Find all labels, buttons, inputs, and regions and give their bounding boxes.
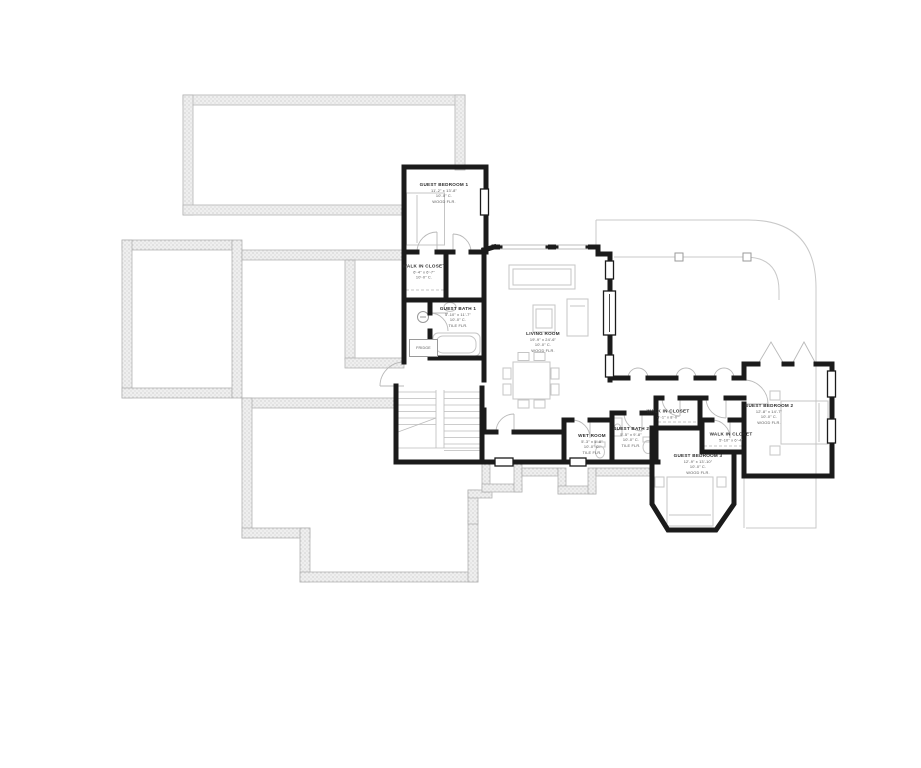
foundation-band xyxy=(468,520,478,582)
room-label-guest-bedroom-2: GUEST BEDROOM 2 12'-8" x 14'-7" 10'-0" C… xyxy=(745,403,794,425)
window-well xyxy=(522,468,558,476)
window-well xyxy=(596,468,652,476)
room-label-guest-bath-1: GUEST BATH 1 5'-10" x 11'-7" 10'-0" C. T… xyxy=(440,306,476,328)
staircase xyxy=(398,390,480,451)
wall-living-north xyxy=(484,247,598,250)
fridge-label: FRIDGE xyxy=(416,346,431,350)
room-label-guest-bedroom-3: GUEST BEDROOM 3 12'-9" x 13'-10" 10'-0" … xyxy=(674,453,723,475)
window-symbol xyxy=(828,419,836,443)
bathtub-inner xyxy=(436,336,476,353)
window-symbol xyxy=(570,458,586,466)
room-label-walk-in-closet-2: WALK IN CLOSET 4'-1" x 8'-0" xyxy=(647,408,690,419)
window-well xyxy=(588,468,596,494)
window-symbol xyxy=(495,458,513,466)
room-floor: WOOD FLR. xyxy=(745,420,794,425)
window-symbol xyxy=(828,371,836,397)
floor-plan-canvas: GUEST BEDROOM 1 11'-2" x 13'-8" 10'-0" C… xyxy=(0,0,921,768)
room-label-wet-room: WET ROOM 5'-3" x 5'-8" 10'-0" C. TILE FL… xyxy=(578,433,606,455)
foundation-band xyxy=(122,240,232,250)
foundation-band xyxy=(345,260,355,360)
foundation-band xyxy=(183,95,465,105)
foundation-band xyxy=(122,388,232,398)
french-door-arc xyxy=(714,368,734,378)
casement-window-symbol xyxy=(792,342,816,364)
room-dims: 4'-1" x 8'-0" xyxy=(647,414,690,419)
armchair-cushion xyxy=(536,309,552,328)
sofa-cushion xyxy=(513,269,571,285)
room-floor: TILE FLR. xyxy=(613,443,649,448)
stair-break-line xyxy=(398,418,436,432)
fridge-box: FRIDGE xyxy=(409,339,438,357)
dining-chair xyxy=(518,400,529,408)
floor-plan-drawing xyxy=(0,0,921,768)
dining-chair xyxy=(534,353,545,361)
window-symbol xyxy=(606,261,614,279)
room-floor: TILE FLR. xyxy=(440,323,476,328)
foundation-band xyxy=(345,358,404,368)
stair-treads-right xyxy=(444,392,480,451)
dining-chair xyxy=(534,400,545,408)
foundation-band xyxy=(183,205,405,215)
nightstand xyxy=(717,477,726,487)
foundation-band xyxy=(122,240,132,398)
dining-table xyxy=(513,362,550,399)
chaise xyxy=(567,299,588,336)
foundation-band xyxy=(242,250,404,260)
room-dims: 5'-10" x 6'-4" xyxy=(710,437,753,442)
door-swing-arc xyxy=(453,234,471,252)
dining-chair xyxy=(503,368,511,379)
patio-beam-line xyxy=(614,257,779,300)
bed xyxy=(667,477,713,526)
window-symbol xyxy=(481,189,489,215)
stair-treads-left xyxy=(398,392,436,425)
foundation-band xyxy=(300,572,478,582)
nightstand xyxy=(770,446,780,455)
wall-corridor-north xyxy=(610,364,744,378)
dining-chair xyxy=(551,368,559,379)
window-well xyxy=(514,462,522,492)
window-glazing-line xyxy=(500,245,588,249)
foundation-band xyxy=(242,398,252,538)
casement-window-symbol xyxy=(758,342,784,364)
foundation-band xyxy=(455,95,465,170)
room-ceiling: 10'-0" C. xyxy=(403,275,446,280)
door-swing-arc xyxy=(417,232,437,252)
room-floor: WOOD FLR. xyxy=(526,348,560,353)
french-door-arc xyxy=(628,368,648,378)
french-door-arc xyxy=(676,368,696,378)
room-floor: TILE FLR. xyxy=(578,450,606,455)
foundation-walls xyxy=(122,95,652,582)
door-swing-arc xyxy=(496,414,514,432)
column-post xyxy=(675,253,683,261)
room-floor: WOOD FLR. xyxy=(420,199,469,204)
door-swing-arc xyxy=(744,380,768,404)
nightstand xyxy=(770,391,780,400)
room-floor: WOOD FLR. xyxy=(674,470,723,475)
foundation-band xyxy=(183,95,193,215)
foundation-band xyxy=(242,398,398,408)
window-symbol xyxy=(606,355,614,377)
room-label-living-room: LIVING ROOM 19'-9" x 24'-6" 10'-0" C. WO… xyxy=(526,331,560,353)
dining-chair xyxy=(551,384,559,395)
door-swing-arc xyxy=(706,398,726,418)
dining-chair xyxy=(518,353,529,361)
room-label-walk-in-closet-1: WALK IN CLOSET 6'-4" x 6'-7" 10'-0" C. xyxy=(403,264,446,281)
dining-chair xyxy=(503,384,511,395)
nightstand xyxy=(655,477,664,487)
room-label-guest-bath-2: GUEST BATH 2 5'-5" x 9'-8" 10'-0" C. TIL… xyxy=(613,426,649,448)
room-label-walk-in-closet-3: WALK IN CLOSET 5'-10" x 6'-4" xyxy=(710,431,753,442)
column-post xyxy=(743,253,751,261)
foundation-band xyxy=(232,240,242,398)
room-label-guest-bedroom-1: GUEST BEDROOM 1 11'-2" x 13'-8" 10'-0" C… xyxy=(420,182,469,204)
